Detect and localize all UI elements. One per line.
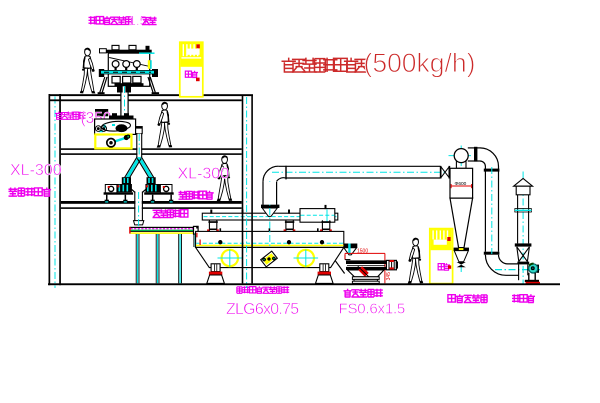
svg-text:1500: 1500 xyxy=(357,249,368,255)
svg-text:XL-300: XL-300 xyxy=(178,166,230,183)
svg-text:FS0.6x1.5: FS0.6x1.5 xyxy=(339,301,406,318)
svg-text:(500kg/h): (500kg/h) xyxy=(364,48,476,78)
svg-text:XL-300: XL-300 xyxy=(10,162,62,179)
svg-text:ZLG6x0.75: ZLG6x0.75 xyxy=(226,301,299,318)
svg-text:1.5: 1.5 xyxy=(129,13,147,28)
svg-text:Φ600: Φ600 xyxy=(455,181,467,187)
svg-text:345: 345 xyxy=(386,272,392,281)
